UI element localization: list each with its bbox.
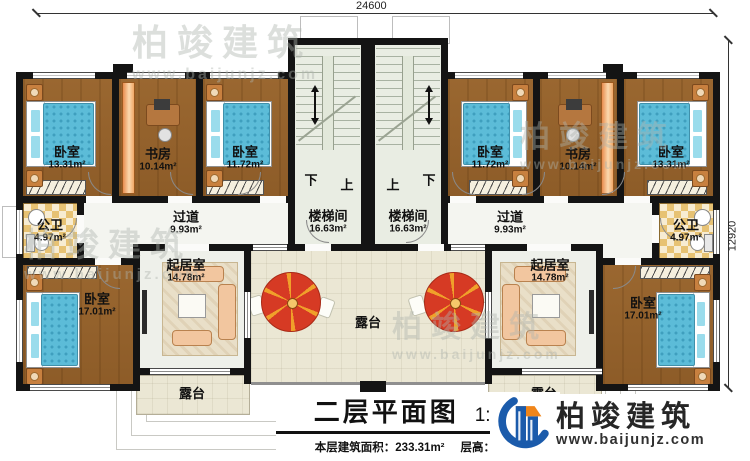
room-label-bath-left: 公卫4.97m² xyxy=(34,218,66,243)
wall xyxy=(485,338,492,384)
wall xyxy=(441,38,448,251)
floor-area-label: 本层建筑面积： xyxy=(315,442,396,454)
terrace-label-center: 露台 xyxy=(355,316,381,330)
desk-chair xyxy=(158,128,172,142)
patio-umbrella xyxy=(261,272,321,332)
wall xyxy=(441,196,720,203)
room-label-stairwell-right: 楼梯间16.63m² xyxy=(388,209,427,234)
brand-logo: 柏竣建筑 www.baijunjz.com xyxy=(490,394,746,456)
room-label-bedroom-br: 卧室17.01m² xyxy=(624,296,661,321)
floor-area-value: 233.31m² xyxy=(395,442,444,454)
nightstand xyxy=(26,84,43,101)
sofa xyxy=(526,330,566,346)
door-opening xyxy=(77,215,84,243)
nightstand xyxy=(206,84,223,101)
door-opening xyxy=(165,244,209,251)
floor-plan-canvas: 卧室13.31m² 书房10.14m² 卧室11.72m² 楼梯间16.63m²… xyxy=(0,0,750,461)
coffee-table xyxy=(532,294,560,318)
dimension-value-right: 12920 xyxy=(726,221,738,252)
stair-down-label: 下 xyxy=(422,170,435,189)
stair-arrow-right xyxy=(428,88,430,122)
window xyxy=(30,384,110,391)
computer-monitor xyxy=(566,99,582,110)
terrace-label-left: 露台 xyxy=(179,387,205,401)
wall xyxy=(485,244,492,292)
wall xyxy=(288,38,448,45)
door-opening xyxy=(168,196,192,203)
window xyxy=(16,300,23,362)
door-opening xyxy=(544,196,568,203)
stair-arrow-left xyxy=(314,88,316,122)
window xyxy=(253,244,287,251)
study-cabinet xyxy=(122,82,135,194)
nightstand xyxy=(26,274,43,291)
door-opening xyxy=(615,258,641,265)
sliding-door xyxy=(485,292,492,338)
window xyxy=(713,300,720,362)
brand-website: www.baijunjz.com xyxy=(556,432,705,448)
nightstand xyxy=(206,170,223,187)
stair-up-label: 上 xyxy=(340,175,353,194)
window xyxy=(127,72,185,79)
nightstand xyxy=(26,170,43,187)
room-label-bedroom-tr2: 卧室11.72m² xyxy=(472,145,509,170)
room-label-corridor-left: 过道9.93m² xyxy=(170,210,202,235)
door-opening xyxy=(418,244,444,251)
window xyxy=(16,210,23,254)
dimension-line-top xyxy=(36,13,714,14)
nightstand xyxy=(694,368,711,385)
wall xyxy=(112,79,119,203)
nightstand xyxy=(692,84,709,101)
room-label-bedroom-tl2: 卧室11.72m² xyxy=(227,145,264,170)
stair-up-label: 上 xyxy=(386,175,399,194)
computer-monitor xyxy=(154,99,170,110)
nightstand xyxy=(694,274,711,291)
floor-hall-left xyxy=(84,244,133,258)
brand-name: 柏竣建筑 xyxy=(556,402,705,432)
window xyxy=(210,72,278,79)
room-label-bedroom-tr: 卧室13.31m² xyxy=(652,145,689,170)
wall xyxy=(244,338,251,384)
door-opening xyxy=(527,244,571,251)
patio-umbrella xyxy=(424,272,484,332)
wall xyxy=(244,244,251,292)
room-label-study-left: 书房10.14m² xyxy=(139,147,176,172)
room-label-living-left: 起居室14.78m² xyxy=(166,258,205,283)
window xyxy=(33,72,95,79)
window xyxy=(451,244,485,251)
sliding-door xyxy=(244,292,251,338)
door-opening xyxy=(260,196,286,203)
nightstand xyxy=(26,368,43,385)
tv xyxy=(142,290,147,334)
room-label-bedroom-tl: 卧室13.31m² xyxy=(48,145,85,170)
window xyxy=(150,368,230,375)
wall xyxy=(16,258,140,265)
door-opening xyxy=(450,196,476,203)
window xyxy=(548,72,606,79)
bed xyxy=(656,292,710,368)
floor-corridor-right xyxy=(448,203,652,244)
coffee-table xyxy=(178,294,206,318)
desk-chair xyxy=(566,128,580,142)
stair-rail-left xyxy=(322,56,334,150)
stair-rail-right xyxy=(402,56,414,150)
door-opening xyxy=(86,196,112,203)
window xyxy=(713,210,720,254)
door-opening xyxy=(305,244,331,251)
room-label-bedroom-bl: 卧室17.01m² xyxy=(78,292,115,317)
toilet-tank xyxy=(704,234,713,252)
tv xyxy=(589,290,594,334)
wall xyxy=(196,79,203,203)
door-opening xyxy=(624,196,650,203)
dimension-line-right xyxy=(728,40,729,388)
wall xyxy=(16,196,295,203)
room-label-study-right: 书房10.14m² xyxy=(559,147,596,172)
wall-pier xyxy=(603,64,623,74)
sofa xyxy=(172,330,212,346)
wall xyxy=(288,38,295,251)
room-label-corridor-right: 过道9.93m² xyxy=(494,210,526,235)
plan-title: 二层平面图 xyxy=(314,392,459,429)
window xyxy=(522,368,602,375)
bed xyxy=(26,292,80,368)
sofa xyxy=(502,284,520,340)
door-opening xyxy=(95,258,121,265)
wall-party xyxy=(361,38,375,251)
dimension-value-top: 24600 xyxy=(356,0,387,12)
door-opening xyxy=(652,215,659,243)
room-label-bath-right: 公卫4.97m² xyxy=(670,218,702,243)
nightstand xyxy=(692,170,709,187)
brand-logo-icon xyxy=(490,394,550,456)
window xyxy=(455,72,523,79)
sofa xyxy=(218,284,236,340)
window xyxy=(637,72,699,79)
window xyxy=(628,384,708,391)
room-label-stairwell-left: 楼梯间16.63m² xyxy=(308,209,347,234)
wall xyxy=(133,244,140,391)
stair-down-label: 下 xyxy=(304,170,317,189)
floor-hall-right xyxy=(603,244,652,258)
nightstand xyxy=(512,84,529,101)
room-label-living-right: 起居室14.78m² xyxy=(530,258,569,283)
